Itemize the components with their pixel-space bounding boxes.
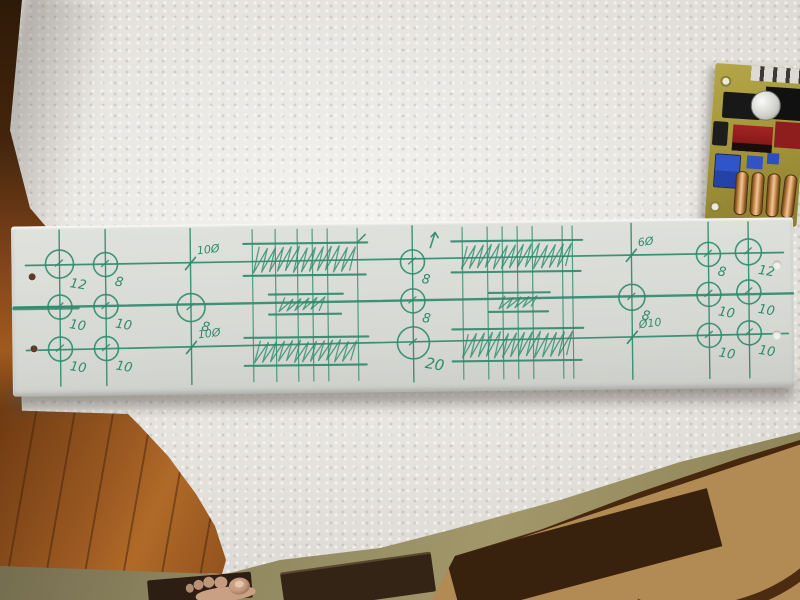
marker-drawing: 128881210108881010101020101010Ø10Ø6ØØ10 [11,217,795,396]
cutout-border-line [244,274,366,275]
cutout-border-line [244,336,368,337]
panel-mount-hole [772,331,781,340]
cutout-hatching [253,246,355,273]
cutout-border-line [489,292,550,293]
pcb-coil-cylinder [780,174,798,219]
cutout-vertical-line [275,230,277,382]
grid-vertical-line [59,230,61,386]
pcb-relay-red [774,121,800,149]
pcb-coil-cylinder [749,172,765,217]
middle-row-line [14,293,794,307]
circuit-board [705,63,800,227]
cutout-border-line [489,311,548,312]
cutout-hatching [462,331,572,358]
hole-diameter-label: 10 [718,345,737,362]
cutout-vertical-line [572,226,574,378]
cutout-vertical-line [252,230,254,382]
grid-vertical-line [631,223,633,379]
top-row-line [25,252,783,265]
cutout-vertical-line [357,229,359,381]
pcb-capacitor-blue [746,155,763,169]
hole-diameter-label: 8 [421,311,432,327]
grid-vertical-line [708,222,710,378]
cutout-border-line [453,360,582,362]
hole-diameter-label: 20 [424,354,446,375]
cutout-border-line [269,294,343,295]
pcb-coil-cylinder [733,171,749,216]
panel-mount-hole [30,345,37,352]
pcb-relay-red [732,124,774,153]
hole-diameter-label: 10 [758,343,777,360]
panel-mount-hole [29,273,36,280]
hole-diameter-label: 10 [115,359,134,376]
pcb-mount-hole [709,201,721,213]
hole-diameter-label: 10 [717,304,736,321]
pcb-coil-cylinder [765,173,781,218]
toe [203,576,215,588]
diameter-mark-label: 10Ø [196,242,220,258]
hole-diameter-label: 8 [421,272,432,288]
pcb-capacitor-blue [767,153,780,165]
bottom-row-line [26,333,788,350]
panel-mount-hole [772,261,781,270]
cutout-border-line [452,271,581,273]
pcb-transistor-small [712,121,729,146]
diameter-mark-label: Ø10 [637,316,662,332]
front-panel-with-marker-layout: 128881210108881010101020101010Ø10Ø6ØØ10 [11,217,795,396]
hole-diameter-label: 10 [757,302,776,319]
diameter-mark-label: 10Ø [197,326,221,342]
up-arrow [435,233,438,238]
grid-vertical-line [748,222,750,378]
hole-diameter-label: 8 [717,264,728,280]
photo-scene: 128881210108881010101020101010Ø10Ø6ØØ10 [0,0,800,600]
hole-diameter-label: 10 [114,317,133,334]
cutout-hatching [279,297,325,312]
diameter-mark-label: 6Ø [637,234,654,249]
cutout-border-line [243,242,367,243]
pcb-connector [750,65,800,84]
hole-diameter-label: 10 [69,359,88,376]
stray-tick [358,234,365,241]
middle-row-bold-segment [14,308,78,309]
pcb-mount-hole [720,75,732,87]
hole-diameter-label: 8 [114,275,125,291]
cutout-border-line [245,364,367,365]
hole-diameter-label: 10 [68,317,87,334]
hole-diameter-label: 12 [69,276,88,293]
cutout-border-line [269,314,341,315]
